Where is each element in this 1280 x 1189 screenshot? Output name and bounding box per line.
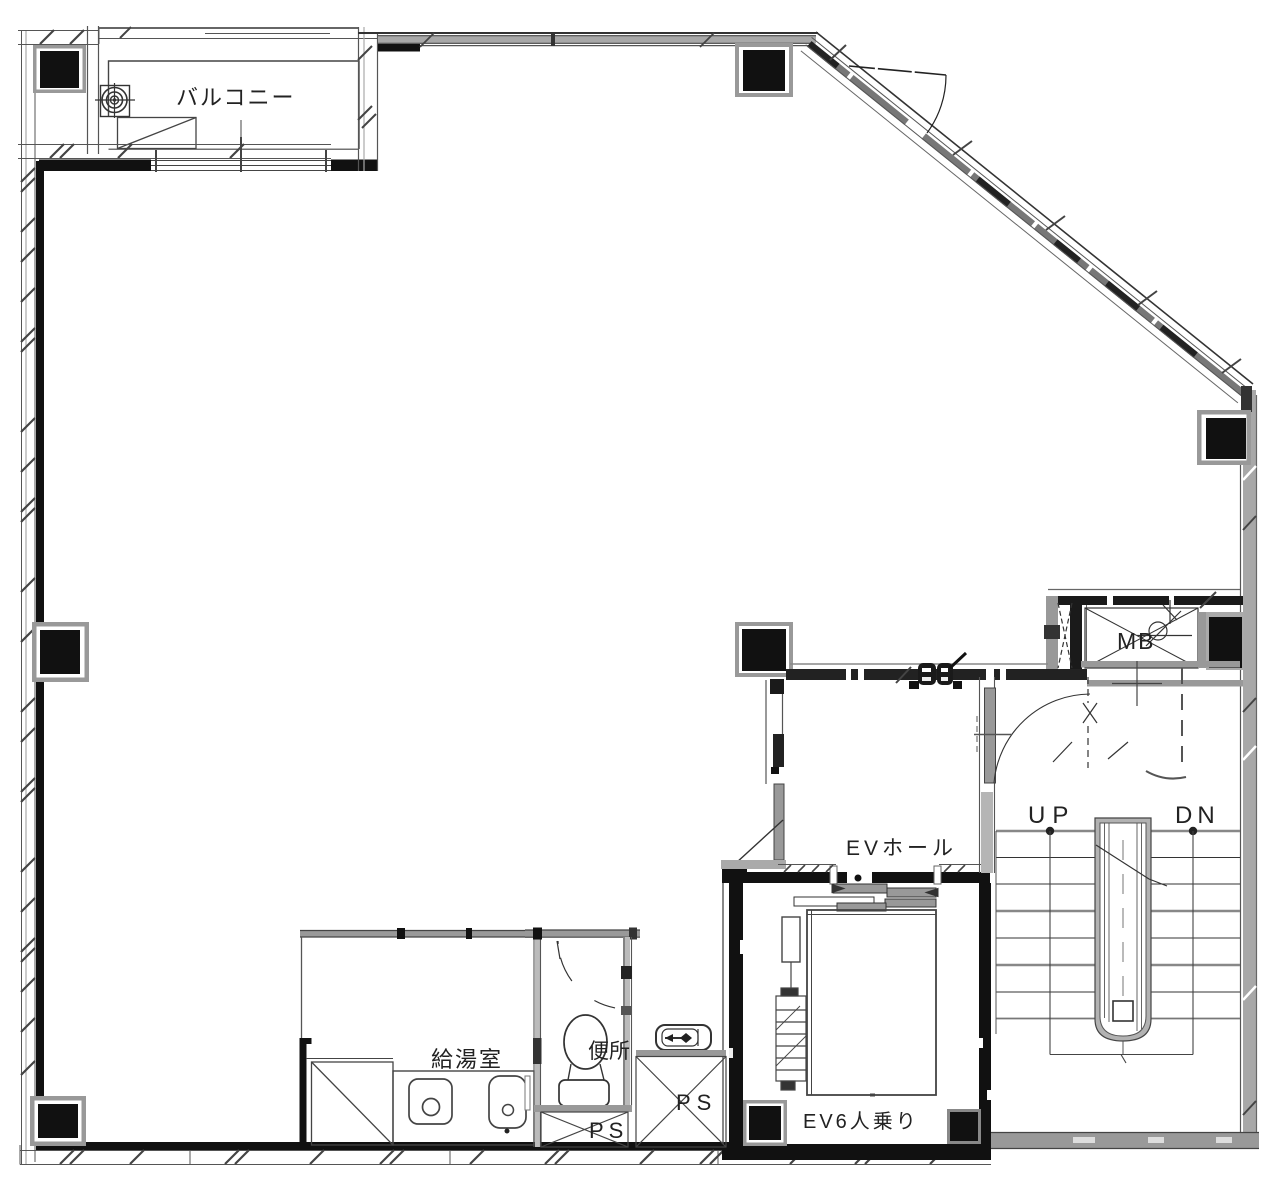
- svg-text:EVホール: EVホール: [846, 837, 957, 860]
- svg-text:MB: MB: [1117, 628, 1156, 654]
- svg-text:便所: 便所: [588, 1040, 630, 1063]
- svg-text:PS: PS: [589, 1118, 628, 1143]
- svg-text:UP: UP: [1028, 802, 1075, 829]
- svg-text:EV6人乗り: EV6人乗り: [803, 1110, 919, 1133]
- svg-text:PS: PS: [676, 1090, 717, 1115]
- svg-text:DN: DN: [1175, 802, 1220, 829]
- svg-text:バルコニー: バルコニー: [176, 85, 296, 110]
- svg-text:給湯室: 給湯室: [431, 1047, 503, 1072]
